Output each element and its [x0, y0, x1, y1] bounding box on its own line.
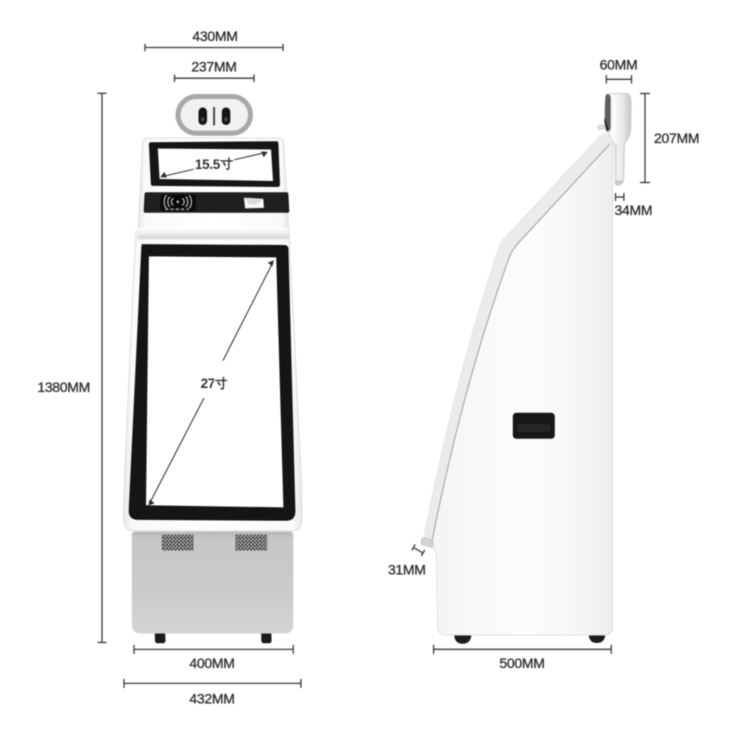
svg-text:500MM: 500MM [499, 655, 544, 671]
svg-text:34MM: 34MM [615, 202, 653, 218]
svg-text:207MM: 207MM [654, 130, 699, 146]
svg-text:15.5: 15.5 [195, 157, 221, 172]
svg-text:432MM: 432MM [189, 691, 234, 707]
svg-text:430MM: 430MM [192, 28, 237, 44]
svg-text:31MM: 31MM [388, 562, 426, 578]
svg-text:27: 27 [201, 376, 215, 391]
svg-text:60MM: 60MM [600, 57, 638, 73]
svg-text:237MM: 237MM [191, 59, 236, 75]
svg-text:400MM: 400MM [189, 655, 234, 671]
svg-text:1380MM: 1380MM [37, 379, 90, 395]
